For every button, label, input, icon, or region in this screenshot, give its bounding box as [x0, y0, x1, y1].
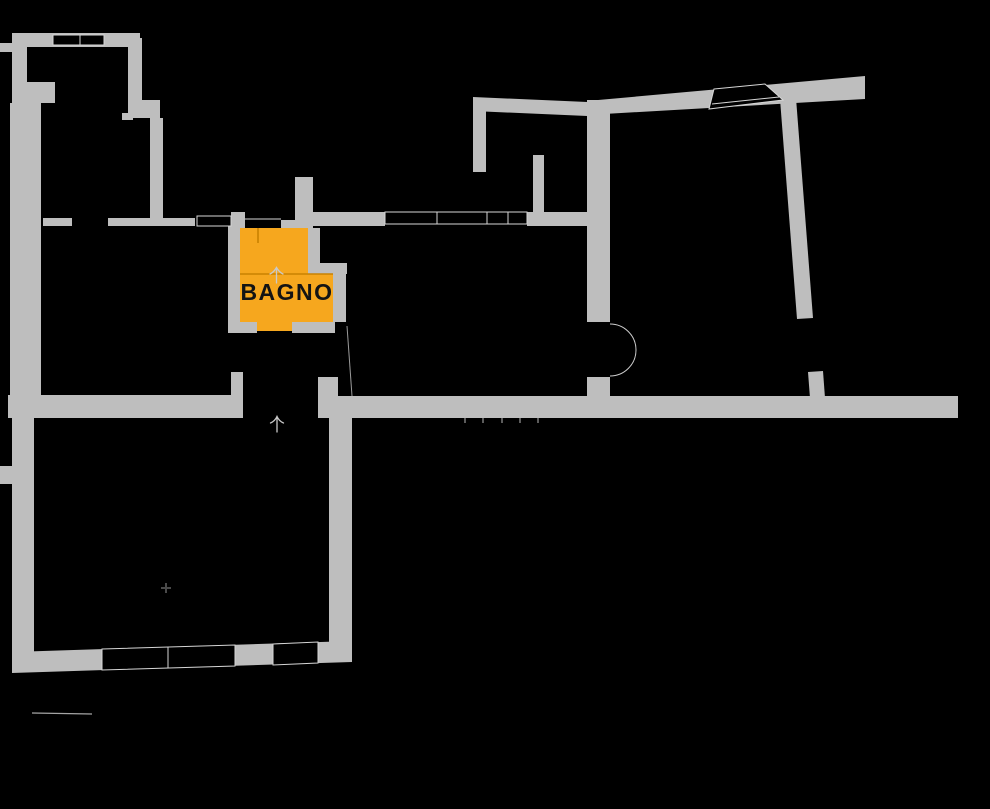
wall-topleft-right — [128, 38, 142, 103]
wall-bagno-bottom-right — [292, 322, 335, 333]
wall-left-lower — [12, 398, 34, 660]
wall-center-mid — [533, 155, 544, 213]
wall-lowerleft-right — [329, 418, 352, 658]
window-lowerleft-2 — [273, 642, 318, 665]
wall-bagno-ext-right — [333, 274, 346, 322]
wall-entrance-jamb-right — [318, 377, 338, 397]
wall-bagno-ledge — [320, 263, 347, 274]
wall-band-seg3 — [313, 212, 385, 226]
wall-topleft-jog-stub — [122, 113, 133, 120]
wall-band-seg2 — [108, 218, 195, 226]
wall-bagno-right-upper — [308, 228, 320, 274]
room-label-bagno: BAGNO — [240, 279, 333, 305]
wall-vert-above-bagno — [295, 177, 313, 232]
window-topleft — [53, 35, 104, 45]
floorplan-svg: BAGNO — [0, 0, 990, 809]
wall-band-seg4 — [527, 212, 587, 226]
wall-entrance-jamb-left — [231, 372, 243, 418]
wall-center-left — [473, 99, 486, 172]
wall-left-upper — [12, 33, 27, 85]
wall-right-room-right-stub — [808, 371, 825, 398]
wall-column-stub — [587, 377, 610, 398]
wall-corridor-bottom-main — [318, 396, 958, 418]
wall-bagno-left — [228, 220, 240, 333]
wall-left-edge-notch-top — [0, 43, 12, 52]
wall-band-seg1 — [43, 218, 72, 226]
wall-bagno-bottom-left — [240, 322, 257, 333]
wall-left-edge-notch-mid — [0, 466, 12, 484]
wall-column-upper — [587, 100, 610, 322]
wall-corridor-bottom-left — [8, 395, 233, 418]
wall-midroom-left — [150, 118, 163, 218]
window-corridor — [385, 212, 527, 224]
wall-left-pilaster — [12, 82, 55, 103]
door-leaf-top-band — [197, 216, 231, 226]
wall-left-mid — [10, 103, 41, 399]
